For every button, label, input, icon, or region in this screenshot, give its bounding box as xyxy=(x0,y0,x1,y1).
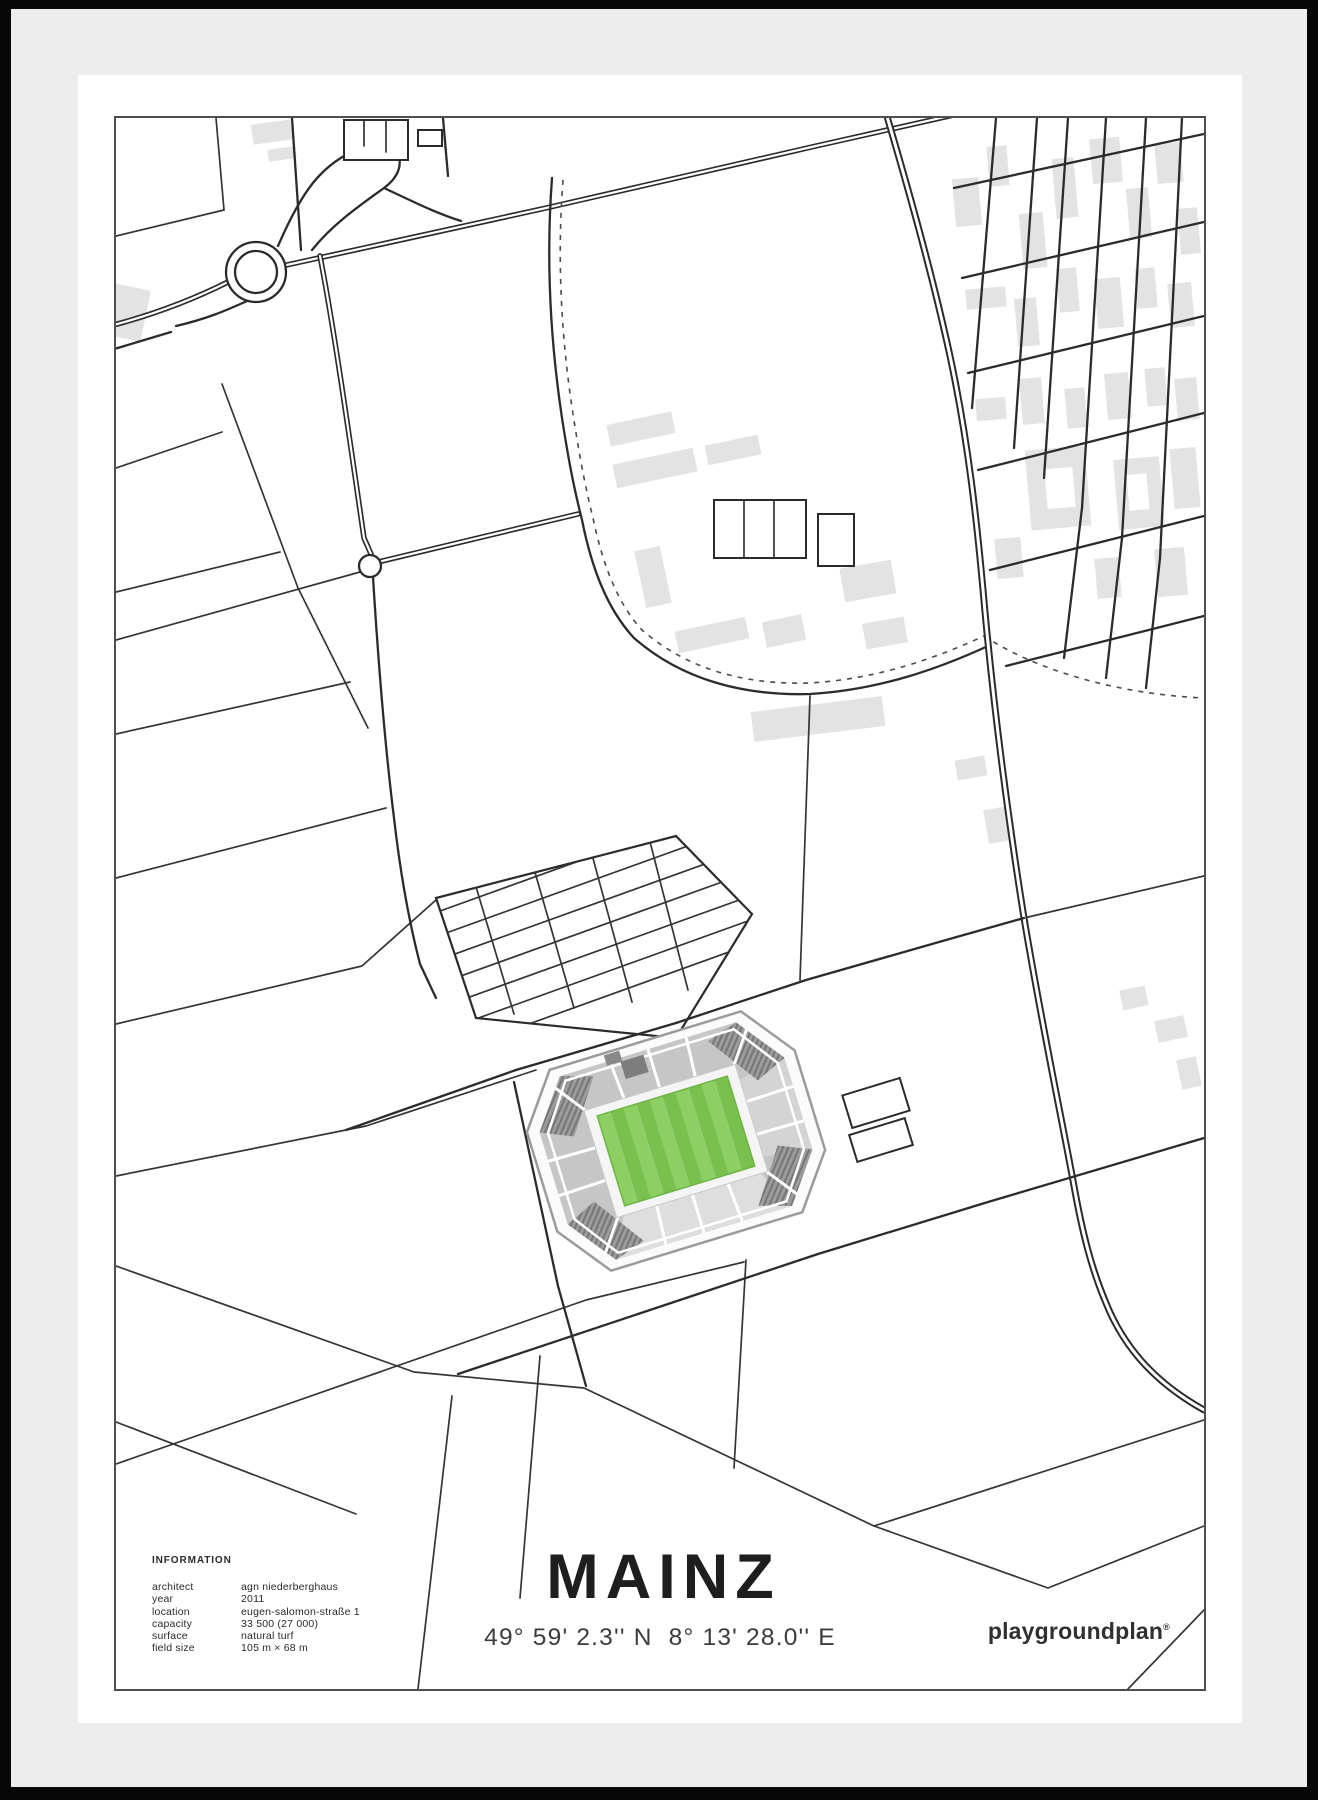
map-drawing xyxy=(116,118,1204,1689)
brand-name: playgroundplan xyxy=(988,1618,1163,1644)
main-road-south xyxy=(886,118,1204,1410)
parking-grid xyxy=(392,754,790,1056)
page-title: MAINZ xyxy=(116,1546,1204,1609)
interchange xyxy=(116,118,976,350)
map-area: INFORMATION architect agn niederberghaus… xyxy=(114,116,1206,1691)
city-buildings xyxy=(952,137,1202,1090)
registered-trademark-icon: ® xyxy=(1163,1622,1170,1632)
framed-poster: INFORMATION architect agn niederberghaus… xyxy=(0,0,1318,1800)
junction-circle xyxy=(359,555,381,577)
brand-logo: playgroundplan® xyxy=(988,1618,1170,1645)
stadium-footprint xyxy=(511,1000,840,1283)
